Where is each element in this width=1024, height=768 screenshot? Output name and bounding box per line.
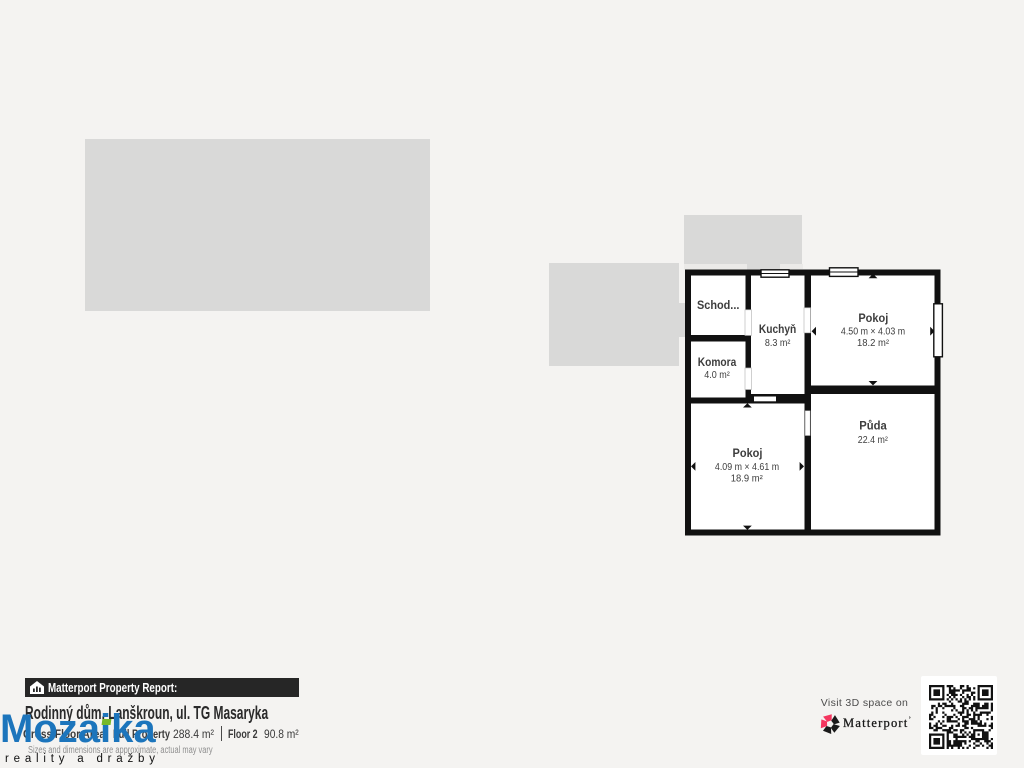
svg-text:18.2 m²: 18.2 m² (857, 338, 890, 349)
svg-text:22.4 m²: 22.4 m² (858, 435, 889, 446)
svg-text:18.9 m²: 18.9 m² (731, 474, 764, 485)
svg-text:Pokoj: Pokoj (733, 446, 763, 460)
svg-text:4.50 m × 4.03 m: 4.50 m × 4.03 m (841, 327, 905, 338)
svg-text:8.3 m²: 8.3 m² (765, 338, 791, 349)
svg-text:Kuchyň: Kuchyň (759, 322, 796, 336)
svg-text:4.0 m²: 4.0 m² (704, 370, 730, 381)
svg-text:Pokoj: Pokoj (858, 311, 888, 325)
svg-text:Schod...: Schod... (697, 298, 739, 312)
svg-text:4.09 m × 4.61 m: 4.09 m × 4.61 m (715, 462, 779, 473)
svg-text:Půda: Půda (859, 419, 887, 433)
svg-text:Komora: Komora (698, 355, 737, 369)
